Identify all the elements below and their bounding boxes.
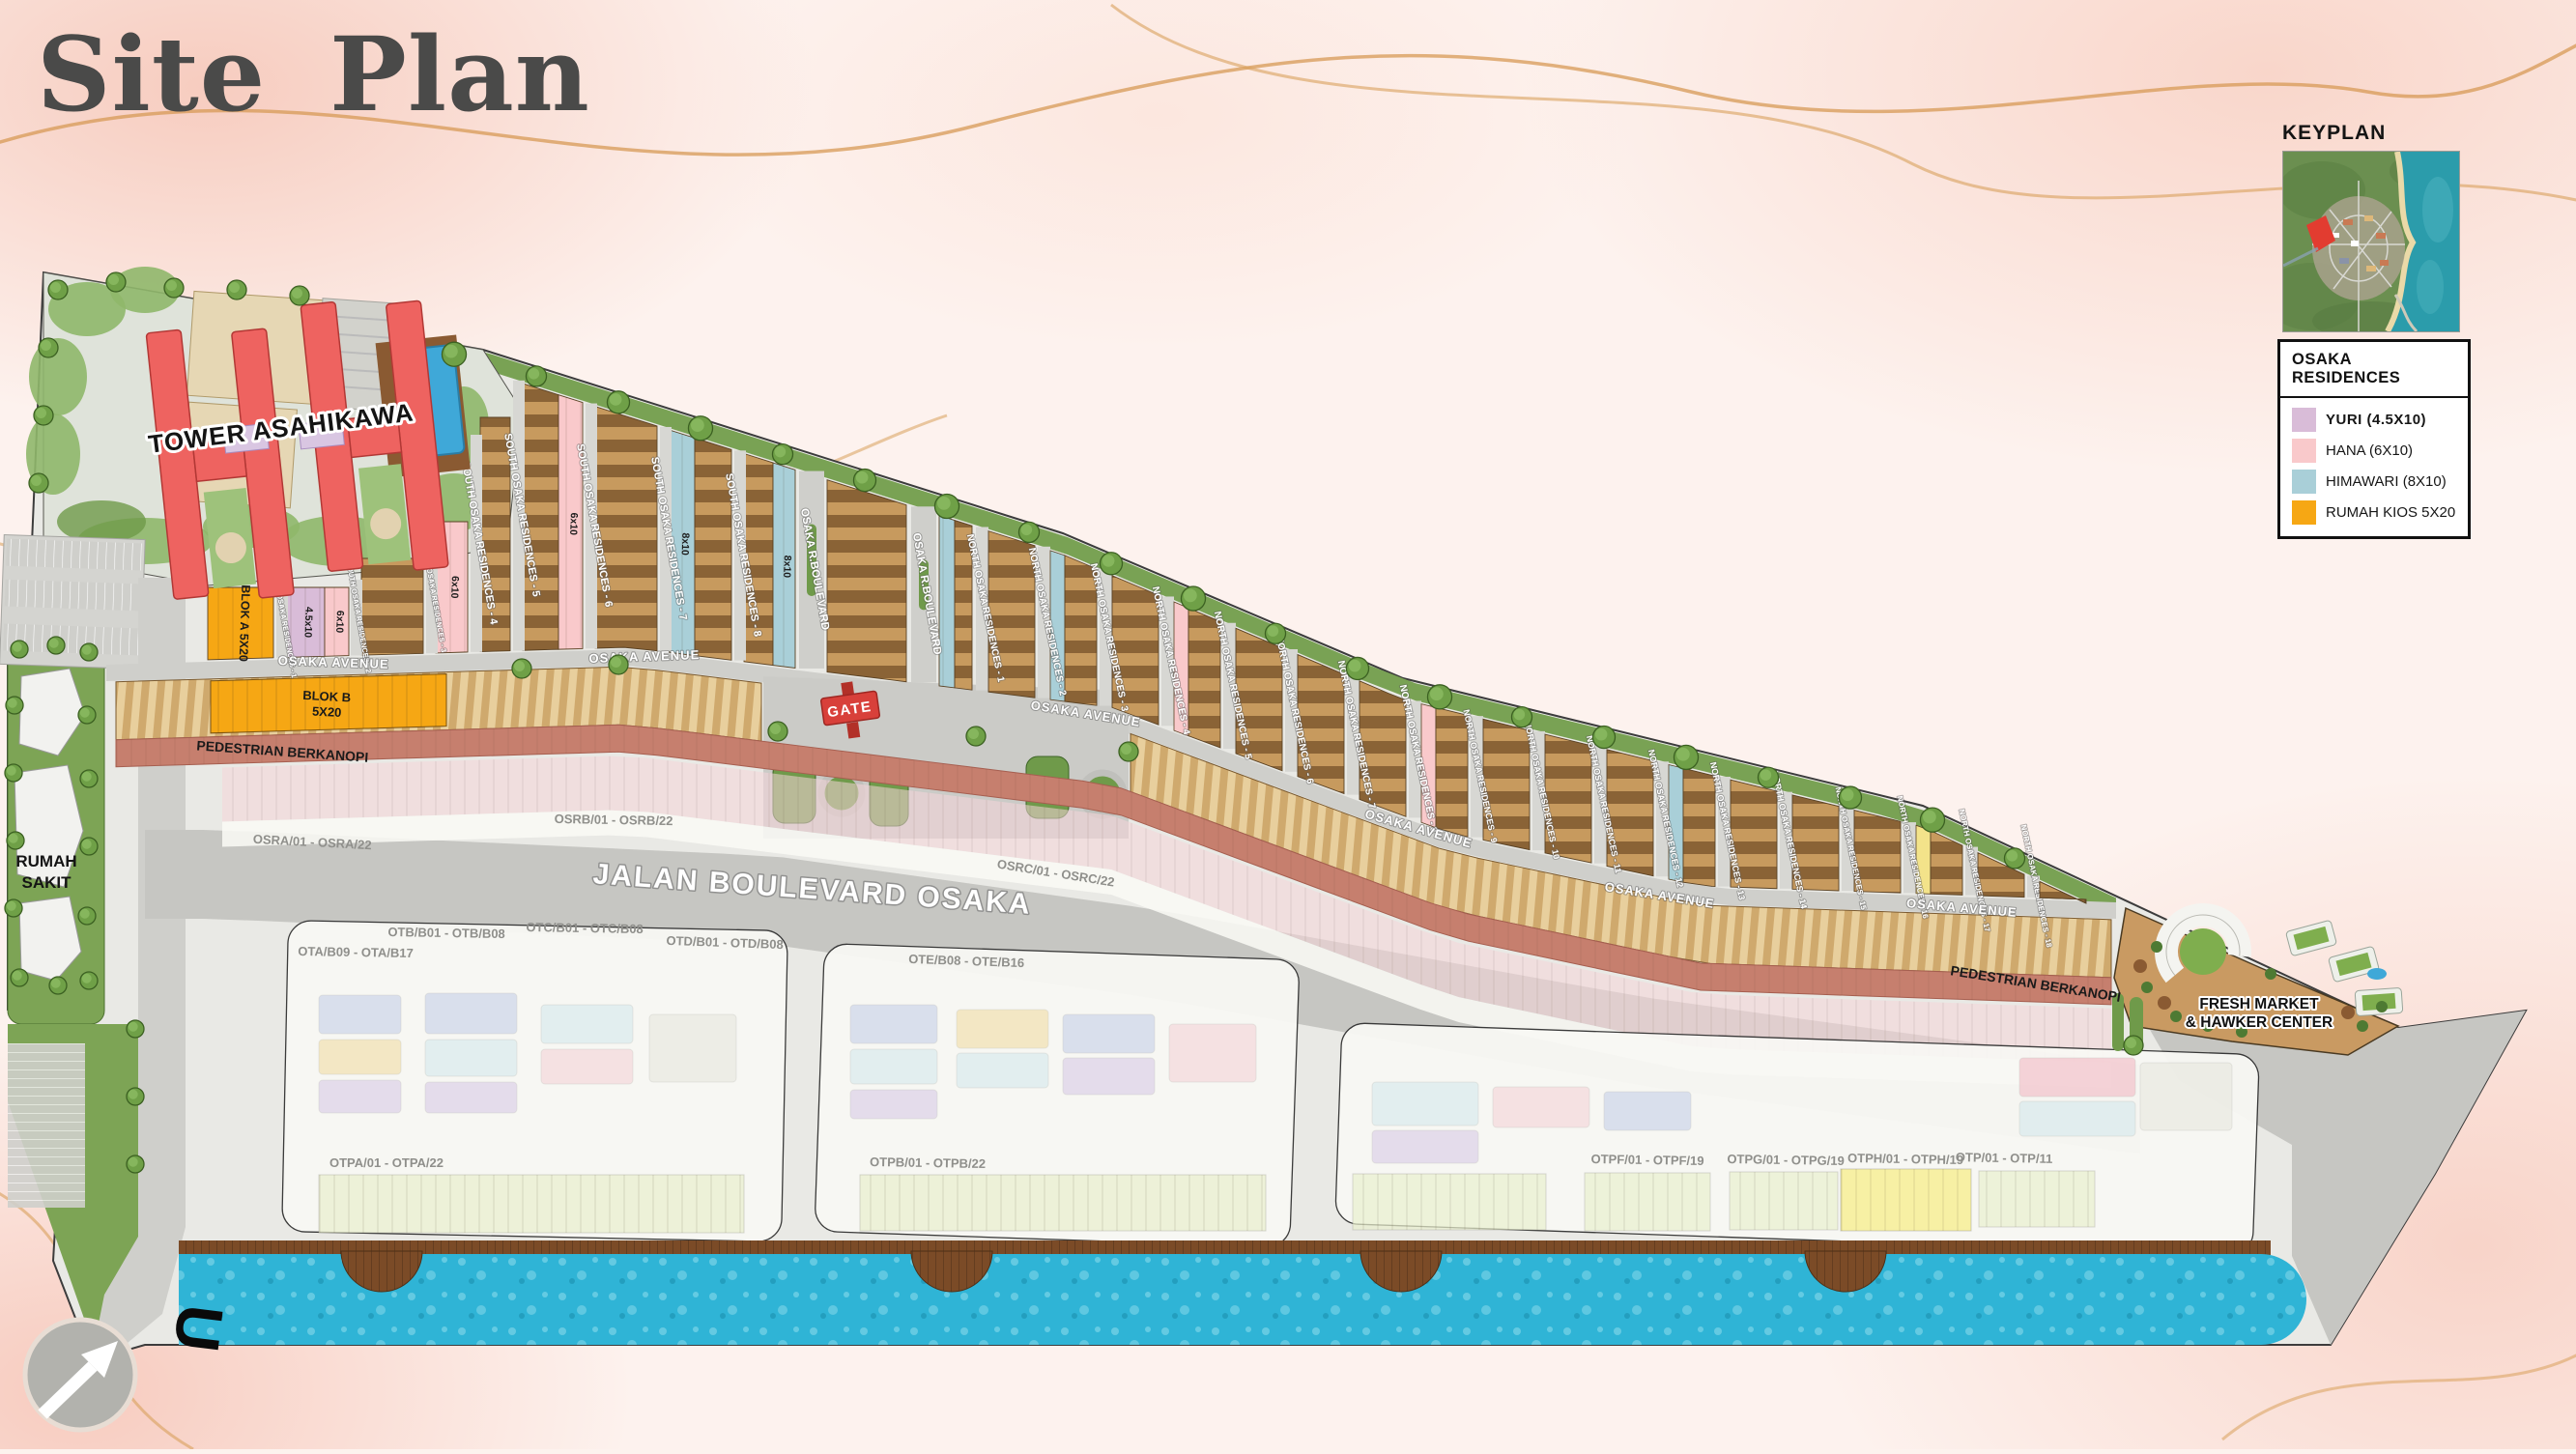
tree-icon	[5, 764, 22, 782]
market-label: & HAWKER CENTER	[2186, 1014, 2333, 1031]
tree-icon	[1674, 745, 1698, 769]
tree-icon	[39, 338, 58, 357]
phase-label: OTPB/01 - OTPB/22	[870, 1155, 986, 1171]
keyplan-label: KEYPLAN	[2282, 122, 2459, 145]
tree-icon	[29, 473, 48, 493]
tree-icon	[1119, 742, 1138, 761]
kios-swatch	[2292, 500, 2316, 525]
tree-icon	[1511, 707, 1531, 727]
tree-icon	[5, 899, 22, 917]
tree-icon	[127, 1155, 144, 1173]
row-size-label: 6x10	[333, 611, 346, 634]
parking-lot-south	[8, 1043, 85, 1208]
tree-icon	[2124, 1036, 2143, 1055]
tree-icon	[11, 641, 28, 658]
row-size-label: BLOK A 5X20	[237, 584, 253, 662]
hana-swatch	[2292, 439, 2316, 463]
legend-panel: OSAKA RESIDENCES YURI (4.5X10) HANA (6X1…	[2277, 339, 2471, 539]
blok-b-label: BLOK B	[302, 688, 352, 705]
tree-icon	[1346, 657, 1368, 679]
hospital-label: RUMAH	[15, 852, 76, 870]
tree-icon	[512, 659, 531, 678]
phase-label: OTPH/01 - OTPH/19	[1847, 1151, 1963, 1167]
tree-icon	[11, 969, 28, 986]
tree-icon	[80, 643, 98, 661]
tree-icon	[768, 722, 787, 741]
legend-item-hana: HANA (6X10)	[2292, 439, 2456, 463]
tree-icon	[80, 770, 98, 787]
row-size-label: 8x10	[781, 556, 793, 579]
hospital-label: SAKIT	[22, 873, 72, 892]
row-size-label: 8x10	[679, 532, 692, 556]
row-size-label: 6x10	[448, 576, 461, 599]
tree-icon	[290, 286, 309, 305]
tree-icon	[1181, 586, 1205, 611]
tree-icon	[106, 272, 126, 292]
tree-icon	[607, 391, 629, 413]
phase-label: OTA/B09 - OTA/B17	[298, 944, 414, 960]
tree-icon	[49, 977, 67, 994]
tree-icon	[609, 655, 628, 674]
tree-icon	[48, 280, 68, 299]
tree-icon	[47, 637, 65, 654]
tree-icon	[772, 444, 792, 465]
phase-label: OTP/01 - OTP/11	[1956, 1150, 2053, 1166]
canal	[179, 1240, 2306, 1345]
hospital: RUMAHSAKIT	[14, 669, 85, 981]
himawari-swatch	[2292, 470, 2316, 494]
tree-icon	[1592, 727, 1615, 749]
tree-icon	[6, 697, 23, 714]
tree-icon	[78, 706, 96, 724]
legend-item-kios: RUMAH KIOS 5X20	[2292, 500, 2456, 525]
phase-label: OTPF/01 - OTPF/19	[1590, 1152, 1703, 1168]
north-letter: U	[160, 1301, 237, 1355]
tree-icon	[442, 342, 466, 366]
phase-label: OTB/B01 - OTB/B08	[387, 925, 505, 941]
tree-icon	[966, 727, 986, 746]
phase-label: OTPG/01 - OTPG/19	[1727, 1152, 1845, 1168]
tree-icon	[227, 280, 246, 299]
tree-icon	[80, 838, 98, 855]
tree-icon	[1018, 522, 1039, 542]
phase-label: OTPA/01 - OTPA/22	[329, 1155, 444, 1170]
tree-icon	[1265, 623, 1285, 643]
keyplan-map	[2282, 151, 2460, 332]
tree-icon	[853, 470, 875, 492]
page-title: Site Plan	[37, 14, 590, 134]
tree-icon	[7, 832, 24, 849]
legend-item-himawari: HIMAWARI (8X10)	[2292, 470, 2456, 494]
tree-icon	[688, 416, 712, 441]
tree-icon	[526, 366, 546, 386]
market-label: FRESH MARKET	[2199, 996, 2319, 1012]
keyplan-panel: KEYPLAN	[2282, 122, 2459, 332]
tree-icon	[1100, 553, 1122, 575]
tree-icon	[127, 1088, 144, 1105]
tree-icon	[934, 494, 959, 518]
tree-icon	[80, 972, 98, 989]
row-size-label: 4.5x10	[301, 607, 314, 639]
yuri-swatch	[2292, 408, 2316, 432]
site-plan-poster: { "title": "Site Plan", "keyplan": { "la…	[0, 0, 2576, 1449]
tree-icon	[1920, 808, 1944, 832]
tree-icon	[1839, 786, 1861, 809]
legend-title: OSAKA RESIDENCES	[2280, 342, 2468, 398]
site-map: BLOK A 5X204.5x106x106x106x108x108x10SOU…	[0, 0, 2576, 1454]
row-size-label: 6x10	[567, 512, 580, 535]
tree-icon	[1758, 767, 1778, 787]
tree-icon	[164, 278, 184, 298]
legend-item-yuri: YURI (4.5X10)	[2292, 408, 2456, 432]
phase-label: OSRB/01 - OSRB/22	[555, 812, 673, 828]
phase-label: OTC/B01 - OTC/B08	[526, 920, 644, 936]
tree-icon	[127, 1020, 144, 1038]
tree-icon	[34, 406, 53, 425]
tree-icon	[78, 907, 96, 925]
tree-icon	[2004, 848, 2024, 869]
tree-icon	[1427, 685, 1451, 709]
blok-b-label: 5X20	[312, 703, 342, 720]
